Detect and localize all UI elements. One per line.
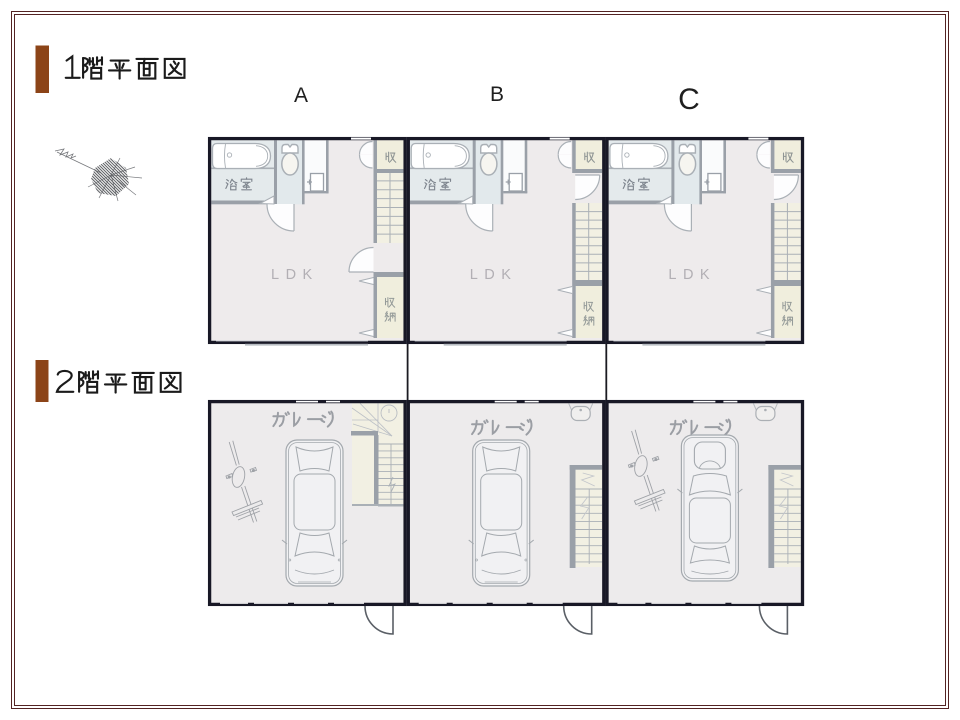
svg-text:LDK: LDK [271, 267, 319, 283]
svg-text:A: A [294, 84, 308, 107]
svg-text:LDK: LDK [470, 267, 518, 283]
svg-text:C: C [678, 83, 700, 116]
svg-text:B: B [490, 83, 504, 106]
svg-text:LDK: LDK [668, 267, 716, 283]
